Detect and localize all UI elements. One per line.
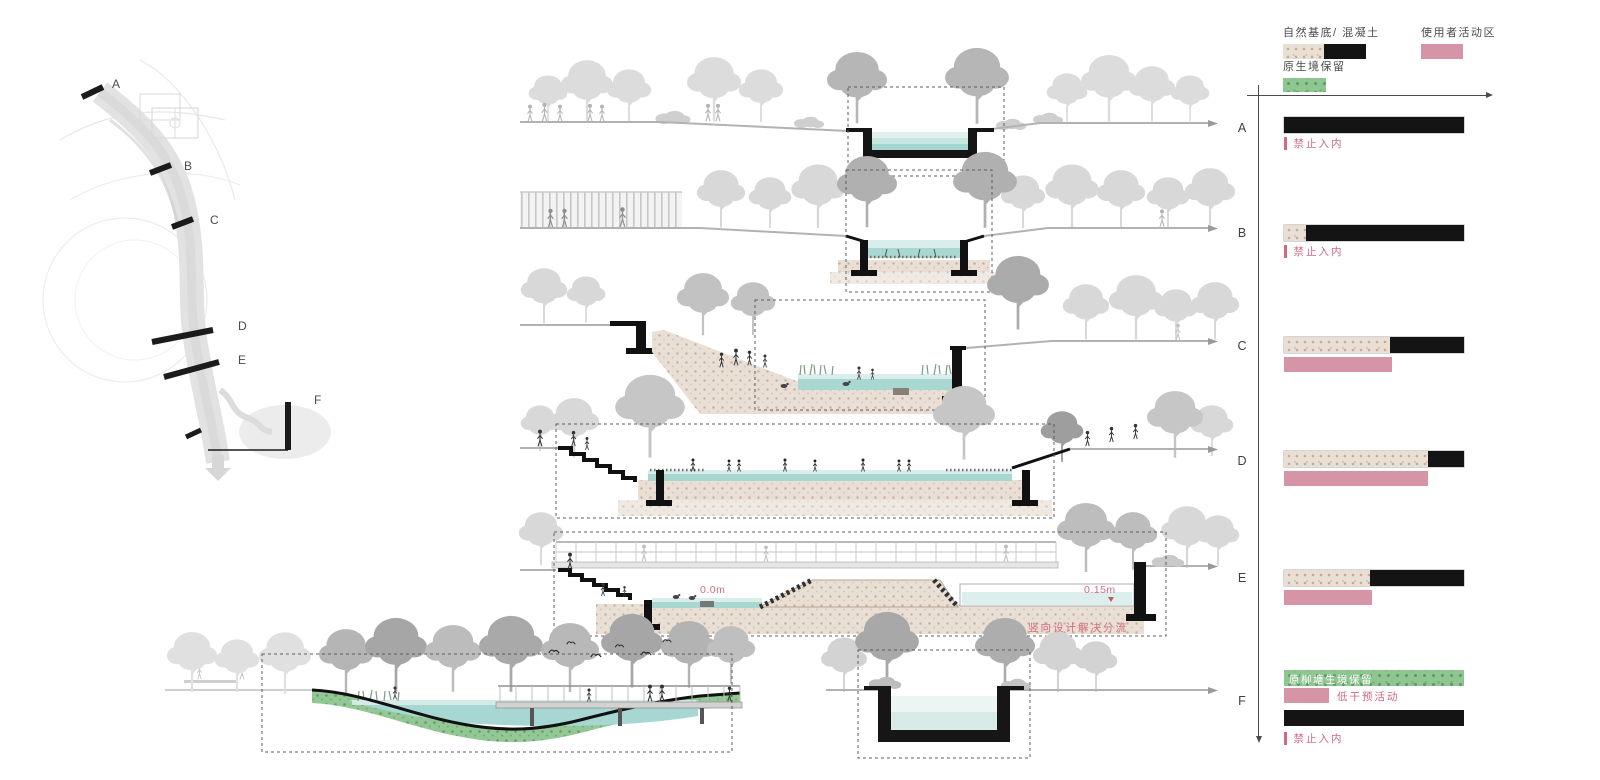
bar-e-activity-segment xyxy=(1284,590,1372,605)
plan-label-c: C xyxy=(210,213,219,227)
bar-a-note: 禁止入内 xyxy=(1284,136,1344,151)
legend-label-activity: 使用者活动区 xyxy=(1421,24,1496,40)
bar-b-substrate xyxy=(1284,225,1464,241)
plan-label-b: B xyxy=(184,159,192,173)
row-label-f: F xyxy=(1231,694,1253,708)
bar-e-natural-segment xyxy=(1284,570,1370,586)
legend-swatch-concrete xyxy=(1324,44,1366,59)
row-label-b: B xyxy=(1231,226,1253,240)
legend-label-habitat: 原生境保留 xyxy=(1283,58,1346,74)
note-tick xyxy=(1284,245,1287,258)
bar-a-concrete-segment xyxy=(1284,117,1464,133)
plan-label-a: A xyxy=(112,77,120,91)
bar-f-habitat: 原柳塘生境保留 xyxy=(1284,670,1464,686)
bar-d-activity-segment xyxy=(1284,471,1428,486)
bar-c-concrete-segment xyxy=(1390,337,1464,353)
left-axis-line xyxy=(1258,85,1259,737)
section-f-channel-drawing xyxy=(821,612,1218,758)
left-axis-arrow-icon xyxy=(1256,736,1262,743)
plan-label-f: F xyxy=(314,393,321,407)
row-label-d: D xyxy=(1231,454,1253,468)
bar-c-activity-segment xyxy=(1284,357,1392,372)
bar-b-natural-segment xyxy=(1284,225,1306,241)
bar-e-substrate xyxy=(1284,570,1464,586)
bar-f-habitat-segment: 原柳塘生境保留 xyxy=(1284,670,1464,686)
bar-f-concrete xyxy=(1284,710,1464,726)
legend-swatch-natural xyxy=(1283,44,1324,59)
legend-swatch-habitat xyxy=(1283,78,1326,92)
bar-f-activity-segment xyxy=(1284,688,1329,703)
plan-label-e: E xyxy=(238,353,246,367)
row-label-e: E xyxy=(1231,571,1253,585)
canal-section-diagram: A B C D E F xyxy=(0,0,1600,780)
bar-f-habitat-inline-label: 原柳塘生境保留 xyxy=(1284,674,1373,686)
section-b-drawing xyxy=(520,152,1235,292)
bar-d-concrete-segment xyxy=(1428,451,1464,467)
bar-e-concrete-segment xyxy=(1370,570,1464,586)
site-plan: A B C D E F xyxy=(43,60,331,481)
water-level-right-label: 0.15m xyxy=(1084,584,1116,596)
section-e-note: 竖向设计解决分流 xyxy=(1028,620,1128,635)
legend-label-substrate: 自然基底/ 混凝土 xyxy=(1283,24,1380,40)
row-label-a: A xyxy=(1231,121,1253,135)
bar-c-activity xyxy=(1284,357,1464,372)
top-axis-line xyxy=(1247,95,1487,96)
bar-e-activity xyxy=(1284,590,1464,605)
section-f-pond-drawing xyxy=(165,614,755,752)
bar-d-substrate xyxy=(1284,451,1464,467)
bar-c-substrate xyxy=(1284,337,1464,353)
legend-group-habitat: 原生境保留 xyxy=(1283,58,1346,92)
plan-label-d: D xyxy=(238,319,247,333)
bar-f-activity-label: 低干预活动 xyxy=(1337,689,1400,704)
bar-d-natural-segment xyxy=(1284,451,1428,467)
note-tick xyxy=(1284,137,1287,150)
water-level-left-label: 0.0m xyxy=(700,584,725,596)
bar-a-substrate xyxy=(1284,117,1464,133)
bar-b-note: 禁止入内 xyxy=(1284,244,1344,259)
bar-f-concrete-segment xyxy=(1284,710,1464,726)
legend-swatch-activity xyxy=(1421,44,1463,59)
top-axis-arrow-icon xyxy=(1486,92,1493,98)
bar-b-concrete-segment xyxy=(1306,225,1464,241)
bar-f-note: 禁止入内 xyxy=(1284,731,1344,746)
legend-group-activity: 使用者活动区 xyxy=(1421,24,1496,59)
legend-group-substrate: 自然基底/ 混凝土 xyxy=(1283,24,1380,59)
bar-d-activity xyxy=(1284,471,1464,486)
bar-c-natural-segment xyxy=(1284,337,1390,353)
note-tick xyxy=(1284,732,1287,745)
row-label-c: C xyxy=(1231,339,1253,353)
